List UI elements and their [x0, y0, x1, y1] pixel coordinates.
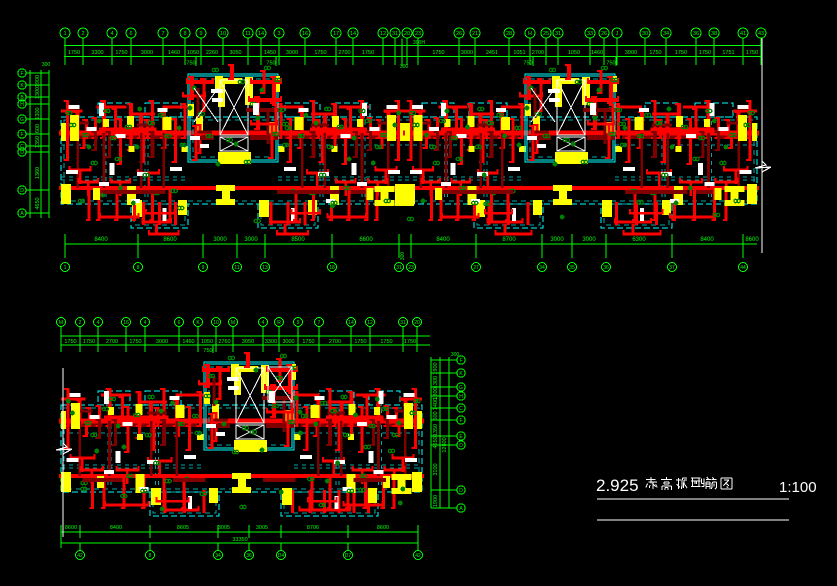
svg-text:9: 9: [199, 31, 202, 37]
svg-text:36: 36: [693, 31, 699, 37]
svg-text:H: H: [20, 102, 24, 108]
svg-text:750: 750: [203, 348, 212, 354]
svg-text:12: 12: [367, 320, 373, 326]
svg-text:26: 26: [456, 31, 462, 37]
svg-text:2700: 2700: [329, 339, 341, 345]
svg-text:34: 34: [539, 265, 545, 271]
svg-text:1350: 1350: [433, 424, 439, 436]
svg-text:1750: 1750: [314, 50, 326, 56]
svg-text:8605: 8605: [177, 525, 189, 531]
svg-text:28: 28: [506, 31, 512, 37]
svg-text:4: 4: [144, 320, 147, 326]
svg-text:D7: D7: [345, 553, 352, 559]
svg-text:1750: 1750: [675, 50, 687, 56]
svg-text:14: 14: [350, 31, 356, 37]
svg-text:3000: 3000: [461, 50, 473, 56]
svg-text:2700: 2700: [338, 50, 350, 56]
svg-text:750: 750: [266, 61, 275, 67]
svg-text:8400: 8400: [700, 237, 714, 243]
svg-text:G: G: [459, 385, 463, 391]
svg-text:8400: 8400: [110, 525, 122, 531]
svg-text:31: 31: [396, 265, 402, 271]
svg-text:D4: D4: [278, 553, 285, 559]
svg-text:1750: 1750: [649, 50, 661, 56]
svg-text:31: 31: [400, 320, 406, 326]
svg-text:1750: 1750: [699, 50, 711, 56]
svg-text:27: 27: [473, 265, 479, 271]
svg-text:7: 7: [318, 320, 321, 326]
svg-text:1750: 1750: [354, 339, 366, 345]
svg-text:1750: 1750: [68, 50, 80, 56]
svg-text:11: 11: [234, 265, 239, 271]
svg-text:8600: 8600: [745, 237, 759, 243]
svg-text:41: 41: [740, 31, 746, 37]
svg-text:31: 31: [392, 31, 398, 37]
svg-text:3300: 3300: [91, 50, 103, 56]
svg-text:3000: 3000: [582, 237, 596, 243]
svg-text:1900: 1900: [35, 75, 41, 87]
svg-text:31: 31: [555, 31, 561, 37]
svg-text:3000: 3000: [244, 237, 258, 243]
svg-text:1750: 1750: [115, 50, 127, 56]
svg-text:34: 34: [663, 31, 669, 37]
svg-text:3000: 3000: [213, 237, 227, 243]
svg-text:750: 750: [606, 61, 615, 67]
svg-text:1900: 1900: [433, 362, 439, 374]
svg-text:30: 30: [642, 31, 648, 37]
svg-text:33: 33: [587, 31, 593, 37]
svg-text:D: D: [20, 150, 24, 156]
svg-text:34: 34: [215, 553, 221, 559]
svg-text:F: F: [20, 71, 23, 77]
svg-text:20: 20: [414, 320, 420, 326]
svg-text:18: 18: [329, 265, 335, 271]
svg-text:26: 26: [601, 31, 607, 37]
svg-text:M: M: [59, 320, 63, 326]
svg-text:4: 4: [110, 31, 113, 37]
svg-text:1300: 1300: [35, 87, 41, 99]
svg-text:3000: 3000: [282, 339, 294, 345]
svg-text:6300: 6300: [632, 237, 646, 243]
svg-text:1300: 1300: [433, 376, 439, 388]
svg-text:1750: 1750: [64, 339, 76, 345]
svg-text:1750: 1750: [380, 339, 392, 345]
svg-text:11: 11: [245, 31, 251, 37]
svg-text:14: 14: [348, 320, 354, 326]
svg-text:8: 8: [183, 31, 186, 37]
svg-text:3100: 3100: [433, 463, 439, 475]
svg-text:1460: 1460: [182, 339, 194, 345]
svg-text:16: 16: [302, 31, 308, 37]
svg-text:33350: 33350: [232, 537, 247, 543]
svg-text:7: 7: [161, 31, 164, 37]
svg-text:F: F: [459, 418, 462, 424]
svg-text:3000: 3000: [156, 339, 168, 345]
svg-text:1050: 1050: [568, 50, 580, 56]
svg-text:3005: 3005: [218, 525, 230, 531]
svg-text:3050: 3050: [229, 50, 241, 56]
svg-text:2760: 2760: [218, 339, 230, 345]
svg-text:750: 750: [186, 61, 195, 67]
svg-text:4: 4: [97, 320, 100, 326]
svg-text:4650: 4650: [35, 197, 41, 209]
svg-text:1750: 1750: [129, 339, 141, 345]
svg-text:4: 4: [262, 320, 265, 326]
svg-text:300: 300: [400, 252, 406, 261]
svg-text:1750: 1750: [83, 339, 95, 345]
svg-text:D: D: [459, 443, 463, 449]
svg-text:23: 23: [408, 265, 414, 271]
svg-text:F: F: [459, 358, 462, 364]
svg-text:3000: 3000: [625, 50, 637, 56]
svg-text:1751: 1751: [722, 50, 734, 56]
svg-text:10: 10: [213, 320, 219, 326]
svg-text:600: 600: [35, 124, 41, 133]
svg-text:4650: 4650: [433, 436, 439, 448]
svg-text:36: 36: [246, 553, 252, 559]
svg-text:37: 37: [669, 265, 675, 271]
svg-text:1450: 1450: [264, 50, 276, 56]
svg-text:G: G: [20, 117, 24, 123]
svg-text:1: 1: [63, 31, 66, 37]
svg-text:38: 38: [711, 31, 717, 37]
svg-text:8600: 8600: [163, 237, 177, 243]
svg-text:42: 42: [415, 553, 421, 559]
svg-text:20: 20: [404, 31, 410, 37]
svg-text:8700: 8700: [502, 237, 516, 243]
svg-text:1: 1: [64, 265, 67, 271]
svg-text:12: 12: [380, 31, 386, 37]
svg-text:8500: 8500: [291, 237, 305, 243]
svg-text:44: 44: [740, 265, 746, 271]
svg-text:D: D: [459, 488, 463, 494]
svg-text:2700: 2700: [532, 50, 544, 56]
svg-text:1750: 1750: [362, 50, 374, 56]
svg-text:13: 13: [262, 265, 268, 271]
svg-text:6: 6: [178, 320, 181, 326]
svg-text:2260: 2260: [206, 50, 218, 56]
svg-text:8: 8: [149, 553, 152, 559]
svg-text:36: 36: [603, 265, 609, 271]
svg-text:1:100: 1:100: [779, 479, 817, 496]
svg-text:1900: 1900: [433, 495, 439, 507]
svg-text:300: 300: [400, 64, 409, 70]
svg-text:J: J: [616, 31, 619, 37]
svg-text:6: 6: [129, 31, 132, 37]
svg-text:2: 2: [79, 320, 82, 326]
svg-text:3300: 3300: [265, 339, 277, 345]
svg-text:1750: 1750: [302, 339, 314, 345]
svg-text:1400: 1400: [433, 398, 439, 410]
svg-text:16: 16: [123, 320, 129, 326]
svg-text:2451: 2451: [486, 50, 498, 56]
svg-text:3050: 3050: [242, 339, 254, 345]
svg-text:21: 21: [472, 31, 478, 37]
svg-text:25: 25: [543, 31, 549, 37]
svg-text:2700: 2700: [106, 339, 118, 345]
svg-text:35: 35: [569, 265, 575, 271]
svg-text:42: 42: [77, 553, 83, 559]
svg-text:6600: 6600: [359, 237, 373, 243]
svg-text:F: F: [20, 132, 23, 138]
svg-text:8400: 8400: [94, 237, 108, 243]
svg-text:1460: 1460: [168, 50, 180, 56]
svg-text:750: 750: [523, 61, 532, 67]
svg-text:R: R: [277, 320, 281, 326]
svg-text:1051: 1051: [513, 50, 525, 56]
svg-text:H: H: [459, 394, 463, 400]
svg-text:14: 14: [258, 31, 264, 37]
svg-text:1460: 1460: [591, 50, 603, 56]
svg-text:8: 8: [137, 265, 140, 271]
svg-text:3000: 3000: [550, 237, 564, 243]
svg-text:9: 9: [202, 265, 205, 271]
svg-text:H: H: [528, 31, 532, 37]
svg-text:1750: 1750: [432, 50, 444, 56]
svg-text:10: 10: [220, 31, 226, 37]
svg-text:1300: 1300: [433, 387, 439, 399]
svg-text:8600: 8600: [65, 525, 77, 531]
svg-text:1350: 1350: [35, 136, 41, 148]
svg-text:3000: 3000: [141, 50, 153, 56]
svg-text:M: M: [231, 320, 235, 326]
svg-text:1050: 1050: [201, 339, 213, 345]
svg-text:2.925: 2.925: [596, 476, 639, 495]
svg-text:3000: 3000: [286, 50, 298, 56]
svg-text:8400: 8400: [436, 237, 450, 243]
svg-text:3: 3: [277, 31, 280, 37]
svg-text:1750: 1750: [404, 339, 416, 345]
svg-text:17: 17: [333, 31, 339, 37]
svg-text:2: 2: [81, 31, 84, 37]
svg-text:1050: 1050: [187, 50, 199, 56]
svg-text:D: D: [20, 188, 24, 194]
svg-text:1360: 1360: [35, 167, 41, 179]
svg-text:12600: 12600: [442, 437, 448, 452]
svg-text:23: 23: [415, 31, 421, 37]
svg-text:300: 300: [451, 352, 460, 358]
svg-text:C: C: [459, 406, 463, 412]
svg-text:300: 300: [42, 62, 51, 68]
svg-text:1300: 1300: [35, 107, 41, 119]
svg-text:300H: 300H: [413, 40, 425, 46]
svg-text:600: 600: [433, 411, 439, 420]
svg-text:1750: 1750: [746, 50, 758, 56]
svg-text:9: 9: [297, 320, 300, 326]
svg-text:43: 43: [758, 31, 764, 37]
svg-text:8600: 8600: [377, 525, 389, 531]
svg-text:3005: 3005: [256, 525, 268, 531]
svg-text:8706: 8706: [307, 525, 319, 531]
